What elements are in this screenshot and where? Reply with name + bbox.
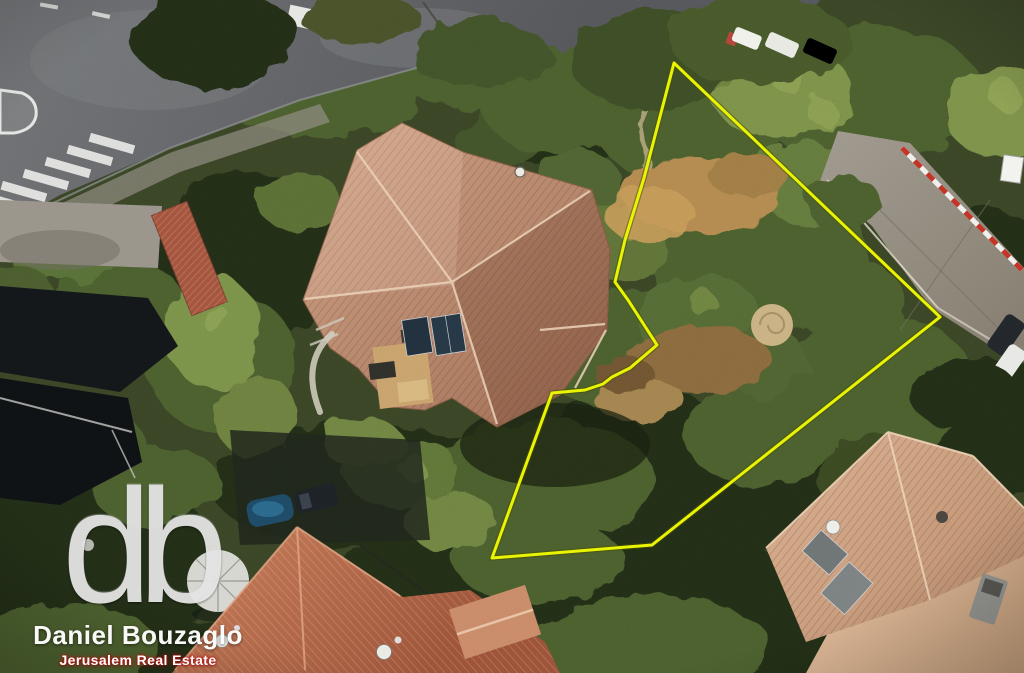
watermark: db Daniel Bouzaglo Jerusalem Real Estate: [18, 482, 258, 668]
aerial-photo: db Daniel Bouzaglo Jerusalem Real Estate: [0, 0, 1024, 673]
agent-name: Daniel Bouzaglo: [18, 620, 258, 651]
brand-logo: db: [18, 482, 258, 612]
agency-tagline: Jerusalem Real Estate: [18, 652, 258, 668]
